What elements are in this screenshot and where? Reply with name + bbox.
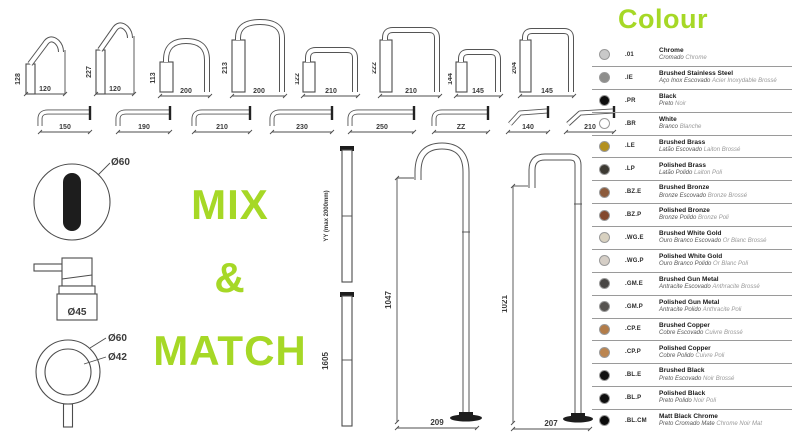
colour-subtitle-pt: Ouro Branco Polido (659, 261, 711, 267)
colour-name: Brushed Bronze (659, 184, 747, 192)
dimension-lines: 210 (192, 124, 252, 134)
colour-name: Polished Bronze (659, 207, 729, 215)
colour-title: Colour (618, 4, 800, 35)
colour-row: .CP.E Brushed Copper Cobre Escovado Cuiv… (592, 319, 792, 342)
colour-row: .BZ.P Polished Bronze Bronze Polido Bron… (592, 204, 792, 227)
colour-subtitle: Ouro Branco Escovado Or Blanc Brossé (659, 238, 766, 246)
colour-text: Polished Gun Metal Antracite Polido Anth… (659, 299, 741, 315)
colour-swatch (599, 49, 610, 60)
floor-spout-square-diagram: 1021 207 (502, 144, 606, 434)
colour-row: .CP.P Polished Copper Cobre Polido Cuivr… (592, 341, 792, 364)
dim-height: 122 (295, 73, 301, 85)
colour-subtitle: Branco Blanche (659, 124, 701, 132)
colour-row: .GM.P Polished Gun Metal Antracite Polid… (592, 296, 792, 319)
colour-swatch (599, 415, 610, 426)
handle-top-view-diagram: Ø60 (22, 146, 136, 248)
spout-diagram-square-high: 222 210 (372, 24, 450, 100)
colour-row: .BZ.E Brushed Bronze Bronze Escovado Bro… (592, 181, 792, 204)
colour-row: .GM.E Brushed Gun Metal Antracite Escova… (592, 273, 792, 296)
colour-name: Chrome (659, 47, 707, 55)
handle-side-view-diagram: Ø45 (30, 252, 110, 322)
colour-text: Brushed Copper Cobre Escovado Cuivre Bro… (659, 322, 743, 338)
colour-code: .LE (625, 143, 653, 149)
colour-text: Brushed Bronze Bronze Escovado Bronze Br… (659, 184, 747, 200)
colour-name: Brushed Copper (659, 322, 743, 330)
spout-outline (532, 157, 593, 423)
dimension-lines: 128 120 (15, 50, 67, 96)
colour-text: Polished Copper Cobre Polido Cuivre Poli (659, 345, 724, 361)
dim-width: 209 (430, 418, 444, 427)
colour-subtitle: Preto Escovado Noir Brossé (659, 376, 734, 384)
colour-swatch (599, 72, 610, 83)
dimension-lines: 150 (38, 124, 92, 134)
colour-text: Polished Brass Latão Polido Laiton Poli (659, 162, 722, 178)
spout-outline (418, 146, 482, 422)
colour-code: .BR (625, 121, 653, 127)
colour-code: .LP (625, 166, 653, 172)
colour-code: .PR (625, 98, 653, 104)
colour-code: .GM.P (625, 304, 653, 310)
colour-swatch (599, 324, 610, 335)
colour-subtitle-pt: Preto Escovado (659, 376, 701, 382)
colour-subtitle-fr: Bronze Brossé (708, 193, 747, 199)
colour-row: .IE Brushed Stainless Steel Aço Inox Esc… (592, 67, 792, 90)
spout-outline (510, 106, 548, 124)
dim-width: 200 (253, 88, 265, 95)
colour-subtitle: Cromado Chrome (659, 55, 707, 63)
colour-text: Polished White Gold Ouro Branco Polido O… (659, 253, 748, 269)
colour-code: .BL.E (625, 372, 653, 378)
colour-subtitle: Bronze Escovado Bronze Brossé (659, 193, 747, 201)
colour-swatch (599, 278, 610, 289)
mix-and-match-headline: MIX & MATCH (136, 184, 324, 372)
dimension-lines: 113 200 (150, 72, 212, 98)
colour-text: Brushed Black Preto Escovado Noir Brossé (659, 367, 734, 383)
colour-swatch (599, 164, 610, 175)
dim-height: 144 (448, 73, 454, 85)
colour-swatch (599, 255, 610, 266)
dimension-lines: 140 (506, 124, 550, 134)
dim-width: 140 (522, 124, 534, 131)
colour-subtitle-pt: Preto Cromado Mate (659, 421, 715, 427)
spout-outline (380, 30, 437, 92)
handle-outline (36, 340, 100, 427)
colour-subtitle-pt: Cromado (659, 55, 684, 61)
colour-subtitle: Bronze Polido Bronze Poli (659, 215, 729, 223)
spout-diagram-square-mid: 204 145 (512, 24, 582, 100)
colour-subtitle-pt: Latão Escovado (659, 147, 702, 153)
dim-height: 227 (86, 66, 93, 78)
dimension-lines: 227 120 (86, 36, 136, 96)
spout-outline (520, 31, 571, 92)
dim-width: 200 (180, 88, 192, 95)
wall-spout-diagram: 190 (108, 104, 176, 138)
match-line: MATCH (153, 330, 307, 372)
dia-label: Ø45 (68, 307, 87, 318)
dim-width: 207 (544, 419, 558, 428)
dim-width: ZZ (457, 124, 466, 131)
colour-name: Brushed Brass (659, 139, 740, 147)
spout-outline (232, 22, 282, 92)
colour-subtitle: Antracite Escovado Anthracite Brossé (659, 284, 760, 292)
colour-subtitle-fr: Acier Inoxydable Brossé (712, 78, 777, 84)
colour-name: Brushed White Gold (659, 230, 766, 238)
colour-legend: Colour .01 Chrome Cromado Chrome .IE Bru… (592, 0, 800, 434)
spout-outline (96, 25, 130, 94)
dimension-lines: Ø60 (98, 157, 130, 175)
dim-width: 250 (376, 124, 388, 131)
spout-diagram-arch-low: 113 200 (150, 36, 220, 100)
colour-text: White Branco Blanche (659, 116, 701, 132)
riser-outline (340, 292, 354, 426)
colour-subtitle: Cobre Polido Cuivre Poli (659, 353, 724, 361)
riser-outline (340, 146, 354, 282)
dim-width: 120 (39, 86, 51, 93)
dim-width: 150 (59, 124, 71, 131)
colour-subtitle-fr: Or Blanc Poli (713, 261, 748, 267)
colour-text: Chrome Cromado Chrome (659, 47, 707, 63)
colour-text: Brushed Stainless Steel Aço Inox Escovad… (659, 70, 777, 86)
colour-name: Black (659, 93, 686, 101)
dim-width: 210 (216, 124, 228, 131)
spout-outline (350, 106, 414, 126)
dim-width: 145 (541, 88, 553, 95)
wall-spout-angled-diagram: 140 (498, 104, 554, 138)
colour-code: .BZ.E (625, 189, 653, 195)
colour-subtitle: Preto Polido Noir Poli (659, 398, 716, 406)
colour-text: Matt Black Chrome Preto Cromado Mate Chr… (659, 413, 762, 429)
colour-name: Polished Black (659, 390, 716, 398)
dia-label: Ø60 (108, 333, 127, 344)
spout-outline (40, 106, 90, 126)
colour-name: Brushed Black (659, 367, 734, 375)
colour-text: Polished Bronze Bronze Polido Bronze Pol… (659, 207, 729, 223)
colour-name: Polished Gun Metal (659, 299, 741, 307)
colour-subtitle-fr: Cuivre Brossé (705, 330, 743, 336)
dim-width: 120 (109, 86, 121, 93)
mix-line: MIX (191, 184, 269, 226)
dim-width: 145 (472, 88, 484, 95)
colour-code: .01 (625, 52, 653, 58)
colour-text: Brushed Gun Metal Antracite Escovado Ant… (659, 276, 760, 292)
colour-subtitle-fr: Laiton Brossé (704, 147, 741, 153)
colour-list: .01 Chrome Cromado Chrome .IE Brushed St… (592, 44, 792, 432)
colour-name: Polished White Gold (659, 253, 748, 261)
colour-swatch (599, 118, 610, 129)
colour-code: .BL.CM (625, 418, 653, 424)
colour-subtitle-pt: Cobre Escovado (659, 330, 703, 336)
colour-subtitle-fr: Noir (675, 101, 686, 107)
colour-text: Polished Black Preto Polido Noir Poli (659, 390, 716, 406)
dim-height: 213 (222, 62, 229, 74)
colour-swatch (599, 187, 610, 198)
colour-subtitle-pt: Latão Polido (659, 170, 692, 176)
riser-column-diagram: YY (max 2000mm) (316, 142, 364, 288)
colour-subtitle-pt: Preto (659, 101, 673, 107)
colour-swatch (599, 301, 610, 312)
colour-subtitle-fr: Chrome (685, 55, 706, 61)
dia-label: Ø60 (111, 157, 130, 168)
colour-subtitle-pt: Branco (659, 124, 678, 130)
dim-height: 204 (512, 62, 518, 74)
colour-subtitle-fr: Noir Brossé (703, 376, 734, 382)
colour-subtitle: Latão Polido Laiton Poli (659, 170, 722, 178)
colour-subtitle: Latão Escovado Laiton Brossé (659, 147, 740, 155)
dim-width: 230 (296, 124, 308, 131)
colour-code: .IE (625, 75, 653, 81)
colour-name: Polished Brass (659, 162, 722, 170)
colour-subtitle-fr: Anthracite Brossé (712, 284, 759, 290)
handle-front-view-diagram: Ø60 Ø42 (24, 326, 138, 430)
colour-swatch (599, 210, 610, 221)
colour-swatch (599, 141, 610, 152)
colour-row: .WG.E Brushed White Gold Ouro Branco Esc… (592, 227, 792, 250)
colour-subtitle-pt: Aço Inox Escovado (659, 78, 710, 84)
spout-diagram-square-low: 122 210 (295, 42, 367, 100)
colour-code: .CP.E (625, 326, 653, 332)
dim-height: 1021 (502, 295, 509, 313)
dim-width: 190 (138, 124, 150, 131)
spout-outline (456, 52, 498, 92)
colour-subtitle-fr: Laiton Poli (694, 170, 722, 176)
spout-outline (194, 106, 250, 126)
dim-width: 210 (325, 88, 337, 95)
dim-height: 222 (372, 62, 378, 74)
colour-subtitle-fr: Or Blanc Brossé (723, 238, 767, 244)
spout-diagram-arch-high: 213 200 (222, 18, 296, 100)
colour-code: .CP.P (625, 349, 653, 355)
colour-row: .WG.P Polished White Gold Ouro Branco Po… (592, 250, 792, 273)
colour-text: Black Preto Noir (659, 93, 686, 109)
handle-outline (34, 258, 97, 320)
colour-code: .BZ.P (625, 212, 653, 218)
colour-row: .01 Chrome Cromado Chrome (592, 44, 792, 67)
colour-code: .WG.P (625, 258, 653, 264)
colour-swatch (599, 232, 610, 243)
ampersand-line: & (214, 257, 245, 299)
dia-label: Ø42 (108, 352, 127, 363)
colour-subtitle-pt: Antracite Escovado (659, 284, 711, 290)
colour-subtitle-fr: Noir Poli (693, 398, 716, 404)
colour-text: Brushed White Gold Ouro Branco Escovado … (659, 230, 766, 246)
colour-subtitle-fr: Bronze Poli (698, 215, 729, 221)
floor-spout-arch-diagram: 1047 209 (385, 132, 497, 434)
handle-outline (34, 164, 110, 240)
colour-subtitle: Ouro Branco Polido Or Blanc Poli (659, 261, 748, 269)
colour-code: .WG.E (625, 235, 653, 241)
colour-subtitle-fr: Anthracite Poli (703, 307, 742, 313)
wall-spout-diagram: 150 (30, 104, 96, 138)
colour-subtitle: Cobre Escovado Cuivre Brossé (659, 330, 743, 338)
colour-subtitle-pt: Bronze Polido (659, 215, 696, 221)
colour-subtitle-fr: Blanche (680, 124, 702, 130)
dimension-lines: 230 (270, 124, 334, 134)
colour-subtitle-pt: Bronze Escovado (659, 193, 706, 199)
dim-height: 1047 (385, 291, 393, 309)
colour-name: Brushed Stainless Steel (659, 70, 777, 78)
spout-diagram-angled-low: 128 120 (14, 24, 82, 100)
colour-row: .BL.CM Matt Black Chrome Preto Cromado M… (592, 410, 792, 432)
colour-swatch (599, 370, 610, 381)
colour-subtitle-pt: Cobre Polido (659, 353, 694, 359)
riser-label: 1605 (321, 352, 330, 370)
colour-row: .LP Polished Brass Latão Polido Laiton P… (592, 158, 792, 181)
colour-row: .BL.P Polished Black Preto Polido Noir P… (592, 387, 792, 410)
spout-outline (160, 41, 207, 92)
colour-subtitle: Aço Inox Escovado Acier Inoxydable Bross… (659, 78, 777, 86)
catalog-page: 128 120 227 120 113 200 (0, 0, 800, 434)
spout-outline (434, 106, 488, 126)
colour-name: Polished Copper (659, 345, 724, 353)
colour-swatch (599, 393, 610, 404)
dim-height: 128 (15, 73, 22, 85)
wall-spout-diagram: 210 (184, 104, 256, 138)
colour-swatch (599, 347, 610, 358)
colour-code: .GM.E (625, 281, 653, 287)
colour-subtitle-fr: Cuivre Poli (695, 353, 724, 359)
colour-code: .BL.P (625, 395, 653, 401)
wall-spout-diagram: 230 (262, 104, 338, 138)
colour-subtitle-pt: Ouro Branco Escovado (659, 238, 721, 244)
colour-name: Matt Black Chrome (659, 413, 762, 421)
dim-height: 113 (150, 72, 157, 83)
spout-outline (303, 50, 355, 92)
spout-outline (118, 106, 170, 126)
dimension-lines: 190 (116, 124, 172, 134)
colour-subtitle-pt: Antracite Polido (659, 307, 701, 313)
colour-row: .BR White Branco Blanche (592, 113, 792, 136)
spout-diagram-angled-high: 227 120 (86, 14, 148, 100)
spout-outline (272, 106, 332, 126)
colour-name: White (659, 116, 701, 124)
colour-row: .BL.E Brushed Black Preto Escovado Noir … (592, 364, 792, 387)
colour-text: Brushed Brass Latão Escovado Laiton Bros… (659, 139, 740, 155)
colour-swatch (599, 95, 610, 106)
colour-row: .PR Black Preto Noir (592, 90, 792, 113)
colour-subtitle: Preto Cromado Mate Chrome Noir Mat (659, 421, 762, 429)
colour-subtitle-pt: Preto Polido (659, 398, 692, 404)
colour-subtitle: Preto Noir (659, 101, 686, 109)
riser-label: YY (max 2000mm) (324, 190, 330, 241)
colour-subtitle: Antracite Polido Anthracite Poli (659, 307, 741, 315)
colour-subtitle-fr: Chrome Noir Mat (716, 421, 762, 427)
riser-column-diagram: 1605 (316, 288, 364, 432)
dim-width: 210 (405, 88, 417, 95)
colour-row: .LE Brushed Brass Latão Escovado Laiton … (592, 136, 792, 159)
spout-diagram-square-small: 144 145 (448, 44, 508, 100)
colour-name: Brushed Gun Metal (659, 276, 760, 284)
